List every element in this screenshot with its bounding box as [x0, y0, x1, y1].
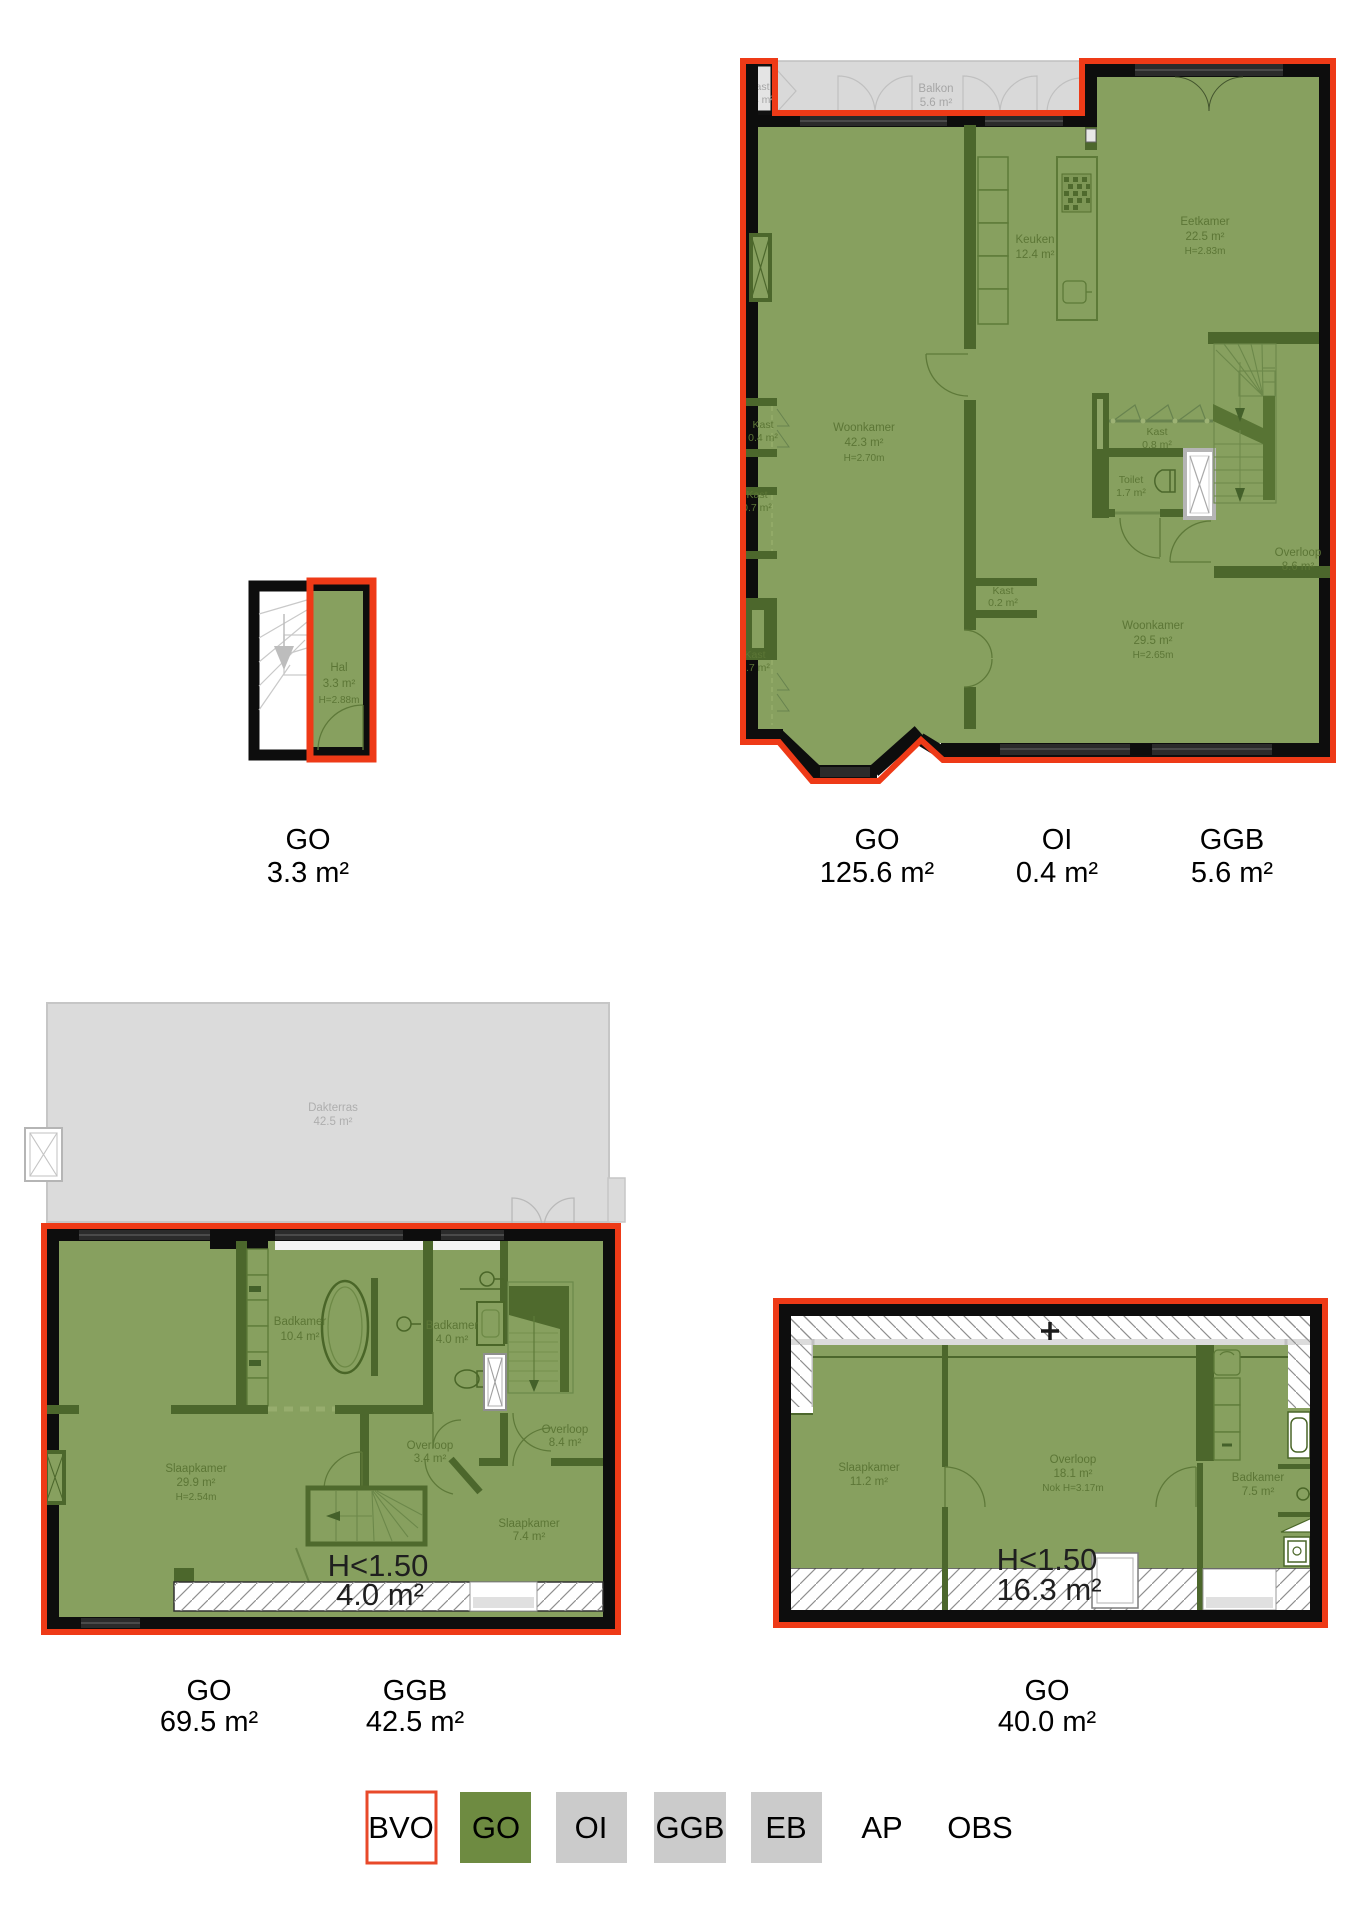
- svg-text:Kast: Kast: [744, 649, 765, 661]
- svg-text:0.7 m²: 0.7 m²: [742, 502, 772, 514]
- svg-text:18.1 m²: 18.1 m²: [1054, 1468, 1093, 1480]
- svg-text:4.0 m²: 4.0 m²: [336, 1577, 424, 1612]
- svg-text:29.5 m²: 29.5 m²: [1134, 635, 1173, 647]
- svg-text:Slaapkamer: Slaapkamer: [498, 1518, 560, 1530]
- svg-text:Overloop: Overloop: [1050, 1454, 1097, 1466]
- svg-text:16.3 m²: 16.3 m²: [996, 1572, 1101, 1607]
- svg-text:GO: GO: [854, 824, 899, 856]
- svg-text:8.4 m²: 8.4 m²: [549, 1437, 582, 1449]
- svg-text:5.6 m²: 5.6 m²: [920, 97, 953, 109]
- svg-text:Badkamer: Badkamer: [426, 1320, 479, 1332]
- svg-text:3.3 m²: 3.3 m²: [323, 678, 356, 690]
- svg-text:Nok H=3.17m: Nok H=3.17m: [1042, 1483, 1103, 1494]
- svg-text:GO: GO: [472, 1810, 520, 1845]
- svg-text:Toilet: Toilet: [1119, 474, 1144, 486]
- svg-text:GGB: GGB: [656, 1810, 725, 1845]
- svg-text:H=2.65m: H=2.65m: [1133, 650, 1174, 661]
- svg-text:Dakterras: Dakterras: [308, 1102, 358, 1114]
- svg-text:Hal: Hal: [330, 662, 347, 674]
- svg-text:Balkon: Balkon: [918, 83, 953, 95]
- svg-text:Overloop: Overloop: [407, 1440, 454, 1452]
- svg-text:1.7 m²: 1.7 m²: [1116, 487, 1146, 499]
- svg-text:H=2.70m: H=2.70m: [844, 453, 885, 464]
- svg-text:Overloop: Overloop: [1275, 547, 1322, 559]
- svg-text:10.4 m²: 10.4 m²: [281, 1331, 320, 1343]
- svg-text:Badkamer: Badkamer: [274, 1316, 327, 1328]
- svg-text:40.0 m²: 40.0 m²: [998, 1706, 1097, 1738]
- svg-text:42.5 m²: 42.5 m²: [314, 1116, 353, 1128]
- svg-text:Eetkamer: Eetkamer: [1180, 216, 1229, 228]
- svg-text:Kast: Kast: [1146, 426, 1167, 438]
- svg-text:11.2 m²: 11.2 m²: [850, 1476, 888, 1488]
- svg-text:42.5 m²: 42.5 m²: [366, 1706, 465, 1738]
- svg-text:29.9 m²: 29.9 m²: [177, 1477, 216, 1489]
- svg-text:Slaapkamer: Slaapkamer: [165, 1463, 227, 1475]
- svg-text:Woonkamer: Woonkamer: [833, 422, 895, 434]
- svg-text:42.3 m²: 42.3 m²: [845, 437, 884, 449]
- svg-text:22.5 m²: 22.5 m²: [1186, 231, 1225, 243]
- svg-text:OI: OI: [1042, 824, 1073, 856]
- svg-text:GO: GO: [186, 1675, 231, 1707]
- svg-text:3.4 m²: 3.4 m²: [414, 1453, 447, 1465]
- svg-text:0.4 m²: 0.4 m²: [1016, 857, 1099, 889]
- svg-text:BVO: BVO: [368, 1810, 433, 1845]
- svg-text:Kast: Kast: [746, 489, 767, 501]
- svg-text:H=2.54m: H=2.54m: [176, 1492, 217, 1503]
- svg-text:7.4 m²: 7.4 m²: [513, 1531, 546, 1543]
- svg-text:125.6 m²: 125.6 m²: [820, 857, 935, 889]
- svg-text:0.4 m²: 0.4 m²: [748, 432, 778, 444]
- svg-text:7.5 m²: 7.5 m²: [1242, 1486, 1275, 1498]
- svg-text:12.4 m²: 12.4 m²: [1016, 249, 1055, 261]
- svg-text:GGB: GGB: [1200, 824, 1264, 856]
- svg-text:GO: GO: [1024, 1675, 1069, 1707]
- svg-text:Keuken: Keuken: [1015, 234, 1054, 246]
- svg-text:Slaapkamer: Slaapkamer: [838, 1462, 900, 1474]
- svg-text:4.0 m²: 4.0 m²: [436, 1334, 469, 1346]
- svg-text:EB: EB: [765, 1810, 806, 1845]
- svg-text:H=2.88m: H=2.88m: [319, 695, 360, 706]
- svg-text:Kast: Kast: [752, 419, 773, 431]
- svg-text:OBS: OBS: [947, 1810, 1012, 1845]
- svg-text:GO: GO: [285, 824, 330, 856]
- svg-text:8.6 m²: 8.6 m²: [1282, 561, 1315, 573]
- svg-text:Overloop: Overloop: [542, 1424, 589, 1436]
- svg-text:H=2.83m: H=2.83m: [1185, 246, 1226, 257]
- svg-text:AP: AP: [861, 1810, 902, 1845]
- svg-text:69.5 m²: 69.5 m²: [160, 1706, 259, 1738]
- svg-text:5.6 m²: 5.6 m²: [1191, 857, 1274, 889]
- svg-text:0.2 m²: 0.2 m²: [988, 597, 1018, 609]
- svg-text:Woonkamer: Woonkamer: [1122, 620, 1184, 632]
- svg-text:3.3 m²: 3.3 m²: [267, 857, 350, 889]
- svg-text:Badkamer: Badkamer: [1232, 1472, 1285, 1484]
- svg-text:GGB: GGB: [383, 1675, 447, 1707]
- svg-text:Kast: Kast: [992, 585, 1013, 597]
- svg-text:OI: OI: [575, 1810, 608, 1845]
